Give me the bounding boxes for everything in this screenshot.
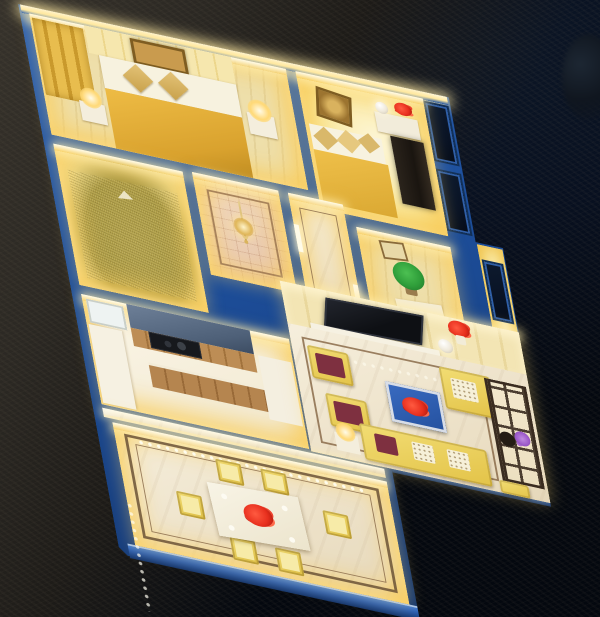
carpet-texture [68,170,198,302]
place-setting-dots [221,493,228,500]
chair-cushion [265,473,285,491]
chair-cushion [180,495,201,515]
chair-cushion [220,463,240,481]
long-sofa-cushion-3 [446,449,471,472]
chair-cushion [234,540,255,560]
loveseat-cushion [450,377,479,403]
long-sofa-cushion-2 [411,441,436,464]
armchair-1-cushion [315,353,346,379]
dresser [374,111,421,141]
ornate-wall-frame [316,86,353,128]
dining-centerpiece-flowers [241,502,275,529]
chair-cushion [279,552,300,572]
long-sofa-cushion-1 [374,433,399,456]
study-wall-frame [378,240,408,262]
green-plant [390,259,426,293]
chair-cushion [327,515,348,535]
dark-wardrobe [390,136,436,211]
photo-scene [0,0,600,617]
